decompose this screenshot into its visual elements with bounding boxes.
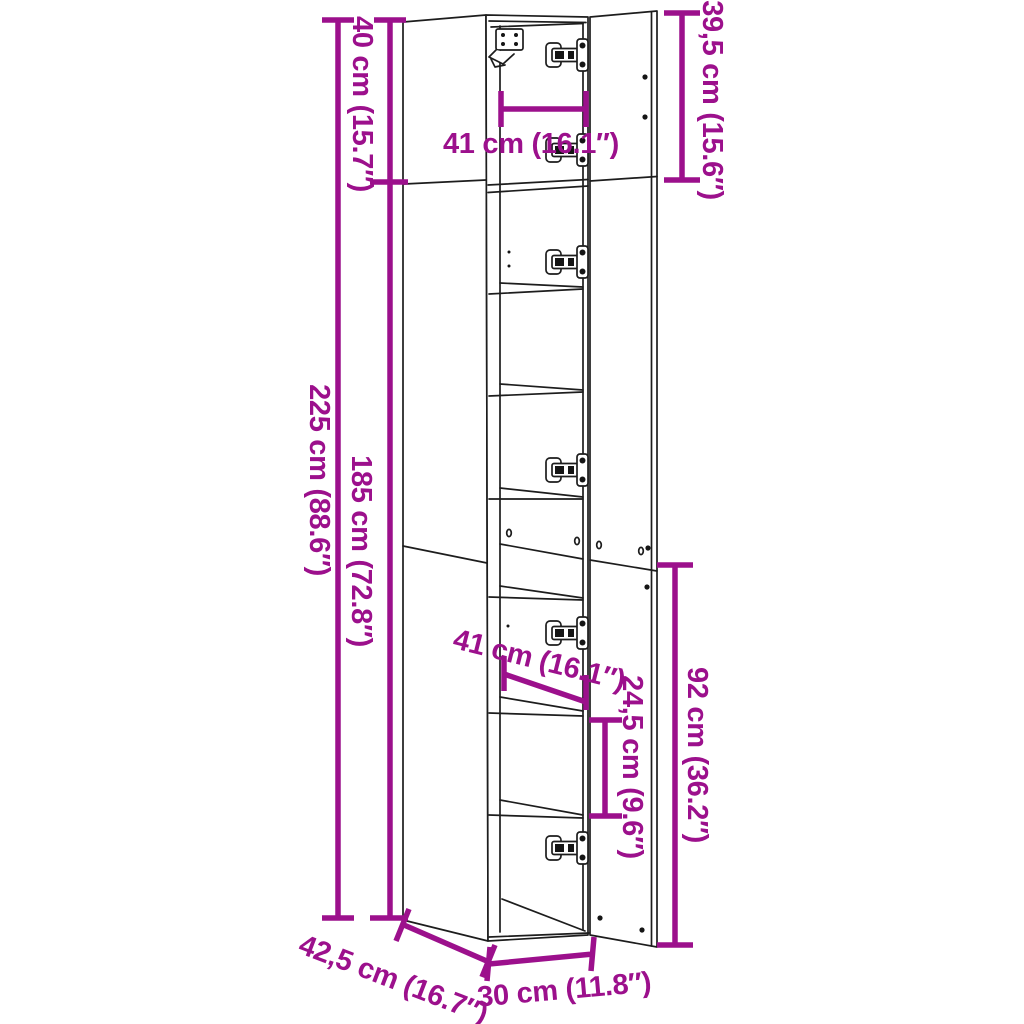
dim-line-top-door-height xyxy=(664,13,700,180)
cabinet-dimension-diagram: 225 cm (88.6″) 185 cm (72.8″) 40 cm (15.… xyxy=(0,0,1024,1024)
dim-label-top-door-height: 39,5 cm (15.6″) xyxy=(696,0,728,200)
dim-label-top-inner-width: 41 cm (16.1″) xyxy=(443,128,619,160)
dim-label-shelf-spacing: 24,5 cm (9.6″) xyxy=(616,675,648,859)
dim-label-top-compartment-height: 40 cm (15.7″) xyxy=(346,16,378,192)
dim-label-width: 30 cm (11.8″) xyxy=(476,966,653,1013)
diagram-canvas: 225 cm (88.6″) 185 cm (72.8″) 40 cm (15.… xyxy=(0,0,1024,1024)
dim-label-bottom-door-height: 92 cm (36.2″) xyxy=(681,667,713,843)
dim-label-lower-section-height: 185 cm (72.8″) xyxy=(345,455,377,647)
dim-label-depth: 42,5 cm (16.7″) xyxy=(294,929,492,1024)
dim-label-overall-height: 225 cm (88.6″) xyxy=(303,384,335,576)
